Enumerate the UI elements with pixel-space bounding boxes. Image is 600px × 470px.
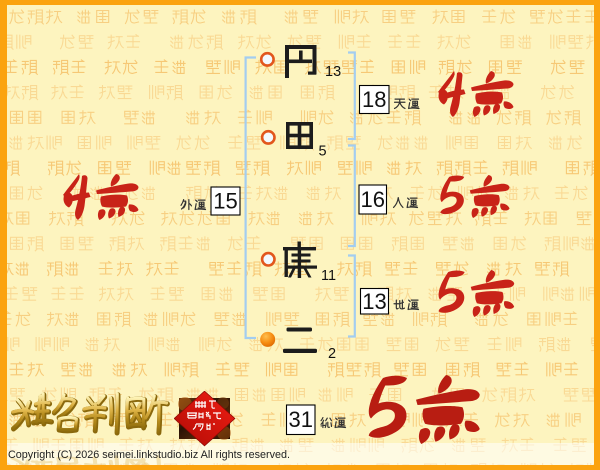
svg-text:5: 5 [319, 144, 327, 160]
svg-text:13: 13 [362, 289, 386, 314]
svg-text:2: 2 [328, 346, 336, 362]
svg-text:16: 16 [361, 187, 385, 212]
svg-text:31: 31 [289, 407, 313, 432]
svg-text:11: 11 [321, 268, 336, 284]
svg-text:13: 13 [325, 64, 341, 80]
svg-text:15: 15 [213, 189, 237, 214]
svg-text:18: 18 [362, 87, 386, 112]
